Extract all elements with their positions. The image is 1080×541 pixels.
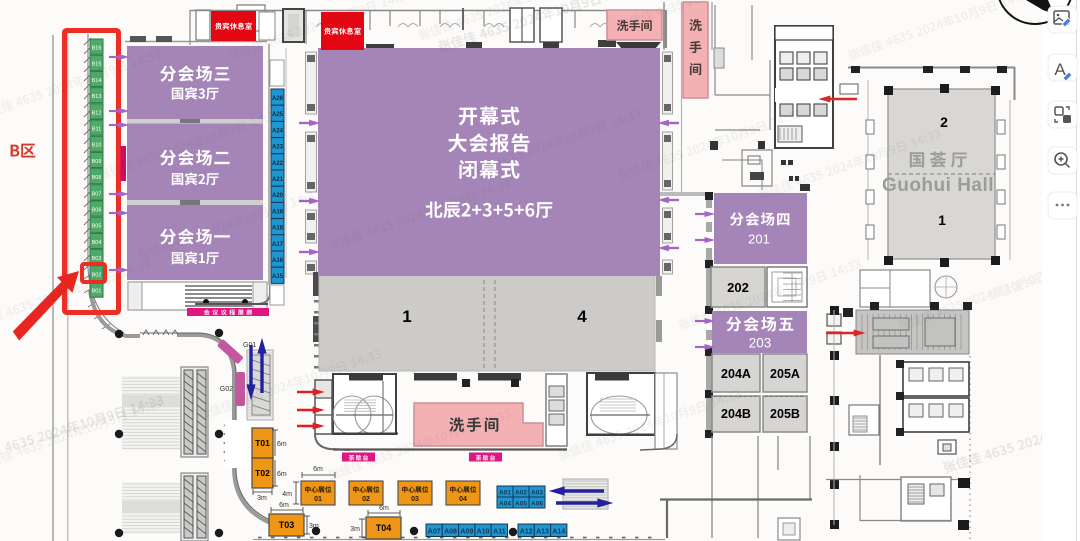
svg-text:A23: A23 — [272, 145, 284, 151]
svg-text:B12: B12 — [92, 110, 102, 116]
svg-text:Guohui Hall: Guohui Hall — [882, 175, 994, 196]
svg-text:4m: 4m — [282, 491, 292, 498]
svg-text:A12: A12 — [520, 529, 533, 536]
svg-text:A20: A20 — [272, 193, 284, 199]
svg-text:B04: B04 — [92, 240, 102, 246]
svg-text:204A: 204A — [721, 367, 751, 381]
svg-text:B09: B09 — [92, 159, 102, 165]
svg-text:A13: A13 — [536, 529, 549, 536]
svg-text:A07: A07 — [428, 529, 441, 536]
svg-text:B10: B10 — [92, 143, 102, 149]
svg-text:01: 01 — [314, 496, 322, 503]
svg-text:6m: 6m — [379, 505, 389, 512]
svg-text:B15: B15 — [92, 62, 102, 68]
svg-text:T02: T02 — [255, 468, 270, 478]
svg-text:T01: T01 — [255, 438, 270, 448]
svg-text:204B: 204B — [721, 407, 751, 421]
svg-text:6m: 6m — [277, 441, 287, 448]
svg-text:B06: B06 — [92, 208, 102, 214]
svg-text:A15: A15 — [272, 274, 284, 280]
svg-text:201: 201 — [748, 232, 770, 247]
svg-text:T04: T04 — [376, 523, 392, 533]
svg-text:02: 02 — [362, 496, 370, 503]
svg-text:A06: A06 — [531, 500, 543, 507]
svg-text:G02: G02 — [220, 386, 233, 393]
svg-text:2: 2 — [940, 114, 948, 130]
svg-text:A10: A10 — [477, 529, 490, 536]
svg-text:205A: 205A — [770, 367, 800, 381]
svg-text:B13: B13 — [92, 94, 102, 100]
svg-text:A21: A21 — [272, 177, 284, 183]
svg-text:6m: 6m — [277, 471, 287, 478]
svg-text:A03: A03 — [531, 489, 543, 496]
svg-text:B01: B01 — [92, 289, 102, 295]
svg-text:A18: A18 — [272, 226, 284, 232]
svg-text:A22: A22 — [272, 161, 284, 167]
svg-text:1: 1 — [938, 212, 946, 228]
svg-text:A17: A17 — [272, 242, 284, 248]
svg-text:3m: 3m — [257, 495, 267, 502]
svg-text:B03: B03 — [92, 256, 102, 262]
svg-text:A26: A26 — [272, 96, 284, 102]
svg-text:3m: 3m — [309, 523, 319, 530]
svg-text:6m: 6m — [313, 466, 323, 473]
svg-text:4: 4 — [577, 307, 587, 326]
svg-text:A02: A02 — [515, 489, 527, 496]
svg-text:A01: A01 — [499, 489, 511, 496]
svg-text:B16: B16 — [92, 46, 102, 52]
svg-text:03: 03 — [411, 496, 419, 503]
svg-text:04: 04 — [459, 496, 467, 503]
svg-text:A16: A16 — [272, 258, 284, 264]
svg-text:3m: 3m — [350, 526, 360, 533]
svg-text:A09: A09 — [460, 529, 473, 536]
svg-text:B05: B05 — [92, 224, 102, 230]
svg-text:A14: A14 — [552, 529, 565, 536]
svg-text:B07: B07 — [92, 191, 102, 197]
svg-text:203: 203 — [749, 336, 772, 351]
svg-text:205B: 205B — [770, 407, 800, 421]
svg-text:T03: T03 — [279, 520, 295, 530]
svg-text:1: 1 — [402, 307, 411, 326]
svg-text:B11: B11 — [92, 127, 101, 133]
svg-text:202: 202 — [727, 280, 749, 295]
svg-text:A08: A08 — [444, 529, 457, 536]
svg-text:A04: A04 — [499, 500, 511, 507]
svg-text:6m: 6m — [279, 502, 289, 509]
svg-text:A24: A24 — [272, 128, 284, 134]
svg-text:A05: A05 — [515, 500, 527, 507]
svg-text:A11: A11 — [493, 529, 506, 536]
